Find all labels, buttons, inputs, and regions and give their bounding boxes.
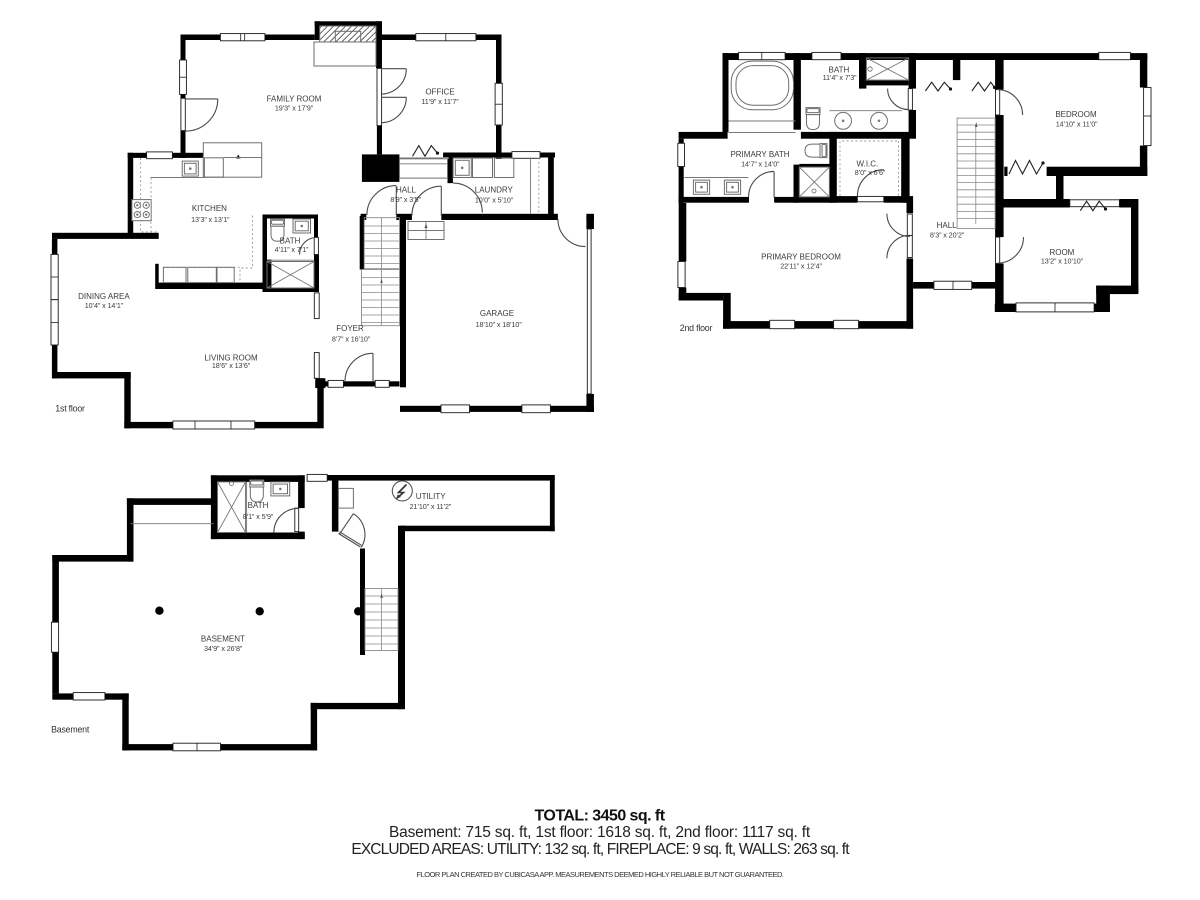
svg-text:22’11” x 12’4”: 22’11” x 12’4” [780, 262, 822, 271]
svg-text:HALL: HALL [396, 186, 417, 195]
svg-text:18’6” x 13’6”: 18’6” x 13’6” [212, 361, 251, 370]
svg-text:8’7” x 16’10”: 8’7” x 16’10” [332, 335, 371, 344]
svg-text:4’11” x 7’1”: 4’11” x 7’1” [275, 245, 310, 254]
svg-text:10’4” x 14’1”: 10’4” x 14’1” [85, 301, 124, 310]
svg-text:KITCHEN: KITCHEN [192, 204, 227, 213]
svg-text:OFFICE: OFFICE [425, 88, 454, 97]
svg-text:Basement: Basement [51, 725, 90, 735]
svg-text:TOTAL: 3450 sq. ft: TOTAL: 3450 sq. ft [535, 807, 666, 824]
svg-text:2nd floor: 2nd floor [680, 323, 713, 333]
svg-text:FAMILY ROOM: FAMILY ROOM [267, 95, 322, 104]
svg-text:GARAGE: GARAGE [480, 309, 514, 318]
svg-text:FLOOR PLAN CREATED BY CUBICASA: FLOOR PLAN CREATED BY CUBICASA APP. MEAS… [417, 870, 784, 879]
svg-text:LAUNDRY: LAUNDRY [475, 186, 514, 195]
svg-text:HALL: HALL [937, 221, 958, 230]
svg-text:11’4” x 7’3”: 11’4” x 7’3” [823, 73, 858, 82]
svg-text:BEDROOM: BEDROOM [1055, 110, 1097, 119]
svg-text:EXCLUDED AREAS: UTILITY: 132 s: EXCLUDED AREAS: UTILITY: 132 sq. ft, FIR… [351, 841, 850, 858]
svg-text:14’10” x 11’0”: 14’10” x 11’0” [1056, 120, 1098, 129]
svg-text:19’3” x 17’9”: 19’3” x 17’9” [275, 104, 314, 113]
svg-text:BATH: BATH [248, 501, 269, 510]
svg-text:13’3” x 13’1”: 13’3” x 13’1” [191, 215, 230, 224]
svg-text:10’0” x 5’10”: 10’0” x 5’10” [475, 195, 514, 204]
svg-text:8’1” x 5’9”: 8’1” x 5’9” [243, 512, 274, 521]
svg-text:14’7” x 14’0”: 14’7” x 14’0” [741, 160, 780, 169]
svg-text:18’10” x 18’10”: 18’10” x 18’10” [476, 320, 523, 329]
svg-text:8’9” x 3’5”: 8’9” x 3’5” [390, 195, 421, 204]
svg-text:FOYER: FOYER [336, 324, 364, 333]
svg-text:34’9” x 26’8”: 34’9” x 26’8” [204, 644, 243, 653]
svg-text:13’2” x 10’10”: 13’2” x 10’10” [1041, 257, 1084, 266]
svg-text:8’0” x 6’6”: 8’0” x 6’6” [855, 168, 886, 177]
svg-text:11’9” x 11’7”: 11’9” x 11’7” [421, 97, 459, 106]
svg-text:Basement: 715 sq. ft, 1st floo: Basement: 715 sq. ft, 1st floor: 1618 sq… [389, 824, 811, 841]
svg-text:PRIMARY BATH: PRIMARY BATH [730, 150, 789, 159]
svg-text:UTILITY: UTILITY [416, 492, 446, 501]
svg-text:21’10” x 11’2”: 21’10” x 11’2” [410, 502, 452, 511]
svg-text:BASEMENT: BASEMENT [201, 635, 245, 644]
svg-text:1st floor: 1st floor [55, 404, 85, 414]
svg-text:PRIMARY BEDROOM: PRIMARY BEDROOM [761, 252, 841, 261]
svg-text:DINING AREA: DINING AREA [78, 292, 130, 301]
svg-text:8’3” x 20’2”: 8’3” x 20’2” [930, 231, 965, 240]
